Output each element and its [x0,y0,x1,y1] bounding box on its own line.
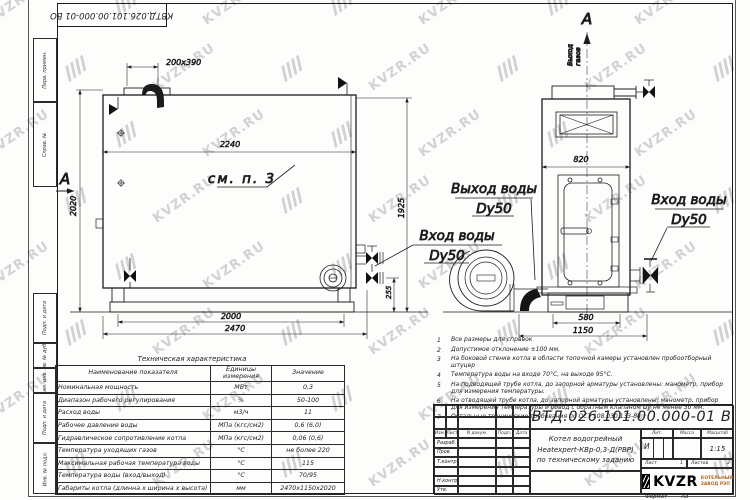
table-cell: Расход воды [56,407,211,420]
scale-value: 1:15 [701,438,734,459]
table-cell: мм [211,482,272,495]
note-text: Все размеры для справок [451,337,532,344]
front-view: А Выход газов [443,10,733,341]
tech-table: Наименование показателяЕдиницы измерения… [55,365,345,495]
sheet-value: 1 [680,461,683,466]
sign-row-label: Т.контр. [434,457,458,467]
change-header-cell: Подп. [496,429,513,438]
table-cell: °С [211,470,272,483]
table-cell: 70/95 [272,470,345,483]
sign-row-cell [513,457,530,467]
upper-hatch [556,112,617,137]
note-item: 3На боковой стенке котла в области топоч… [437,356,731,369]
tech-table-header-cell: Значение [272,366,345,382]
note-item: 1Все размеры для справок [437,337,731,344]
dim-chimney: 200х390 [166,58,201,67]
table-cell: не более 220 [272,444,345,457]
dim-height-right: 1925 [397,198,406,218]
product-name: Котел водогрейный Heatexpert-КВр-0,3-Д(Р… [530,429,641,471]
change-grid-cell [458,405,496,417]
svg-text:Dy50: Dy50 [429,248,465,264]
kvzr-logo-text: KVZR [653,474,698,490]
format-label: Формат [645,494,667,500]
change-grid-cell [446,405,458,417]
table-cell: Номинальная мощность [56,382,211,395]
mass-cell [673,438,701,459]
tech-table-title: Техническая характеристика [55,355,329,363]
inlet-valve-assembly [356,246,383,284]
sign-row-cell [496,448,513,458]
change-header-cell: Дата [513,429,530,438]
table-cell: 11 [272,407,345,420]
dimensions-side: 200х390 2240 2020 1925 2000 2470 255 [69,58,412,339]
tech-table-header-cell: Наименование показателя [56,366,211,382]
table-cell: °С [211,457,272,470]
title-block-empty-cell [530,471,641,495]
table-cell: м3/ч [211,407,272,420]
mass-header: Масса [673,429,701,438]
svg-text:А: А [59,170,70,188]
change-header-cell: N докум. [458,429,496,438]
table-cell: % [211,394,272,407]
sign-row-cell [458,438,496,448]
sheet-label: Лист [645,461,657,466]
sign-row-cell [496,467,513,477]
note-number: 5 [437,382,446,395]
table-cell: Максимальная рабочая температура воды [56,457,211,470]
change-grid-cell [513,405,530,417]
section-mark-a-left: А [56,170,74,191]
change-header-cell: Лист [446,429,458,438]
dim-height-left: 2020 [69,196,78,216]
tech-table-header-row: Наименование показателяЕдиницы измерения… [56,366,345,382]
sign-row-cell [496,476,513,486]
skid-base [70,288,428,312]
note-number: 1 [437,337,446,344]
dim-inlet-height: 255 [385,285,393,299]
lit-header: Лит. [641,429,673,438]
svg-text:Выход воды: Выход воды [451,181,537,197]
lit-cells: И [641,438,673,459]
lit-value: И [644,442,650,451]
sign-row-cell [513,476,530,486]
table-row: Диапазон рабочего регулирования%50-100 [56,394,345,407]
wall-fitting-marks [117,129,125,187]
table-row: Габариты котла (длинна х ширина х высота… [56,482,345,495]
note-item: 2Допустимое отклонение ±100 мм. [437,347,731,354]
note-number: 3 [437,356,446,369]
tech-table-header-cell: Единицы измерения [211,366,272,382]
boiler-body [96,95,365,288]
table-row: Максимальная рабочая температура воды°С1… [56,457,345,470]
scale-header: Масштаб [701,429,734,438]
sign-row-cell [458,476,496,486]
dim-front-base: 580 [578,313,593,322]
table-row: Температура уходящих газов°Сне более 220 [56,444,345,457]
table-cell: 2470х1150х2020 [272,482,345,495]
note-text: Допустимое отклонение ±100 мм. [451,347,560,354]
dim-front-overall: 1150 [573,326,593,335]
sign-row-cell [513,467,530,477]
svg-text:Dy50: Dy50 [671,212,707,228]
sign-row-cell [513,448,530,458]
table-row: Температура воды (вход/выход)°С70/95 [56,470,345,483]
sheets-cell: Листов 2 [687,459,734,468]
sheets-value: 2 [727,461,730,466]
flue-collar [552,86,636,99]
water-inlet-callout-side: Вход воды Dy50 [375,228,502,266]
table-cell: °С [211,444,272,457]
sign-row-label: Н.контр. [434,476,458,486]
sign-row-label [434,467,458,477]
note-text: На подводящей трубе котла, до запорной а… [451,382,731,395]
sign-row-cell [458,467,496,477]
table-cell: Температура воды (вход/выход) [56,470,211,483]
sheets-label: Листов [691,461,708,466]
title-block-doc-number: КВТД.026.101.00.000-01 ВО [530,405,734,429]
table-cell: Габариты котла (длинна х ширина х высота… [56,482,211,495]
sign-row-cell [513,438,530,448]
table-cell: 0,06 (0,6) [272,432,345,445]
water-inlet-callout-front: Вход воды Dy50 [651,192,727,261]
company-logo-cell: KVZR КОТЕЛЬНЫЙ ЗАВОД РЭП [641,468,734,495]
furnace-door [558,175,619,287]
dim-base: 2000 [221,312,241,321]
dim-width-inner: 2240 [220,140,240,149]
table-row: Рабочее давление водыМПа (кгс/см2)0,6 (6… [56,419,345,432]
table-row: Гидравлическое сопротивление котлаМПа (к… [56,432,345,445]
table-row: Расход водым3/ч11 [56,407,345,420]
top-right-valve [636,80,655,98]
gas-outlet-label-2: газов [574,47,582,66]
change-grid-cell [458,417,496,429]
dim-front-width: 820 [573,155,588,164]
change-grid-cell [496,417,513,429]
table-cell: 0,6 (6,0) [272,419,345,432]
svg-text:Вход воды: Вход воды [651,192,727,208]
table-row: Номинальная мощностьМВт0,3 [56,382,345,395]
format-note: Формат А3 [645,494,745,500]
change-grid-cell [434,417,446,429]
table-cell: МВт [211,382,272,395]
sign-row-label: Разраб. [434,438,458,448]
dim-overall: 2470 [225,324,245,333]
sign-row-cell [458,486,496,496]
sign-row-cell [513,486,530,496]
sign-row-cell [496,438,513,448]
note-number: 4 [437,372,446,379]
table-cell: МПа (кгс/см2) [211,419,272,432]
sign-row-cell [496,457,513,467]
change-grid-cell [513,417,530,429]
kvzr-logo-icon [642,474,650,489]
change-grid-cell [496,405,513,417]
company-sub-line2: ЗАВОД РЭП [701,482,733,488]
sign-row-cell [458,457,496,467]
change-grid-cell [446,417,458,429]
note-number: 2 [437,347,446,354]
svg-text:Вход воды: Вход воды [419,228,495,244]
table-cell: Гидравлическое сопротивление котла [56,432,211,445]
note-text: На боковой стенке котла в области топочн… [451,356,731,369]
gas-outlet-label-1: Выход [566,44,574,66]
table-cell: Рабочее давление воды [56,419,211,432]
main-view: 200х390 2240 2020 1925 2000 2470 255 [56,58,502,339]
chimney-connection [124,84,170,108]
table-cell: 50-100 [272,394,345,407]
sign-row-label: Утв. [434,486,458,496]
table-cell: 115 [272,457,345,470]
change-header-cell: Изм. [434,429,446,438]
table-cell: 0,3 [272,382,345,395]
table-cell: МПа (кгс/см2) [211,432,272,445]
callout-see-note-3: см. п. 3 [208,165,295,187]
format-value: А3 [681,494,688,500]
product-name-line1: Котел водогрейный [549,434,623,445]
sign-row-label: Пров. [434,448,458,458]
note-item: 4Температура воды на входе 70°С, на выхо… [437,372,731,379]
table-cell: Температура уходящих газов [56,444,211,457]
svg-text:Dy50: Dy50 [476,201,512,217]
tech-characteristics: Техническая характеристика Наименование … [55,355,329,495]
door-handle [561,228,588,234]
view-label-a: А [581,10,592,28]
note-item: 5На подводящей трубе котла, до запорной … [437,382,731,395]
product-name-line2: Heatexpert-КВр-0,3-Д(РВР) [537,445,634,456]
note-text: Температура воды на входе 70°С, на выход… [451,372,613,379]
burner-flange [320,265,346,291]
product-name-line3: по техническому заданию [537,455,634,466]
title-block: Изм.ЛистN докум.Подп.ДатаРазраб.Пров.Т.к… [433,404,733,494]
gas-outlet-centerline: Выход газов [566,32,591,313]
sign-row-cell [458,448,496,458]
change-grid-cell [434,405,446,417]
sign-row-cell [496,486,513,496]
sheet-cell: Лист 1 [641,459,687,468]
table-cell: Диапазон рабочего регулирования [56,394,211,407]
svg-text:см. п. 3: см. п. 3 [208,171,276,187]
